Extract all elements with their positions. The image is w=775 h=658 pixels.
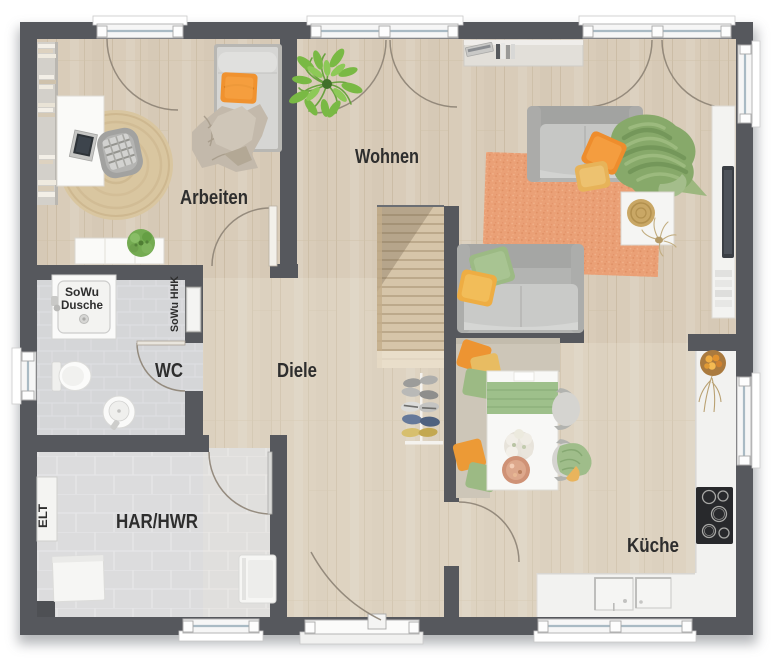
svg-text:WC: WC	[155, 360, 183, 382]
svg-text:Dusche: Dusche	[61, 298, 103, 312]
svg-text:SoWu HHK: SoWu HHK	[169, 276, 181, 332]
svg-text:Küche: Küche	[627, 535, 679, 557]
svg-text:HAR/HWR: HAR/HWR	[116, 511, 198, 533]
svg-text:Diele: Diele	[277, 360, 317, 382]
svg-text:SoWu: SoWu	[65, 285, 99, 299]
svg-text:ELT: ELT	[36, 503, 50, 528]
svg-text:Wohnen: Wohnen	[355, 146, 419, 168]
svg-text:Arbeiten: Arbeiten	[180, 187, 248, 209]
